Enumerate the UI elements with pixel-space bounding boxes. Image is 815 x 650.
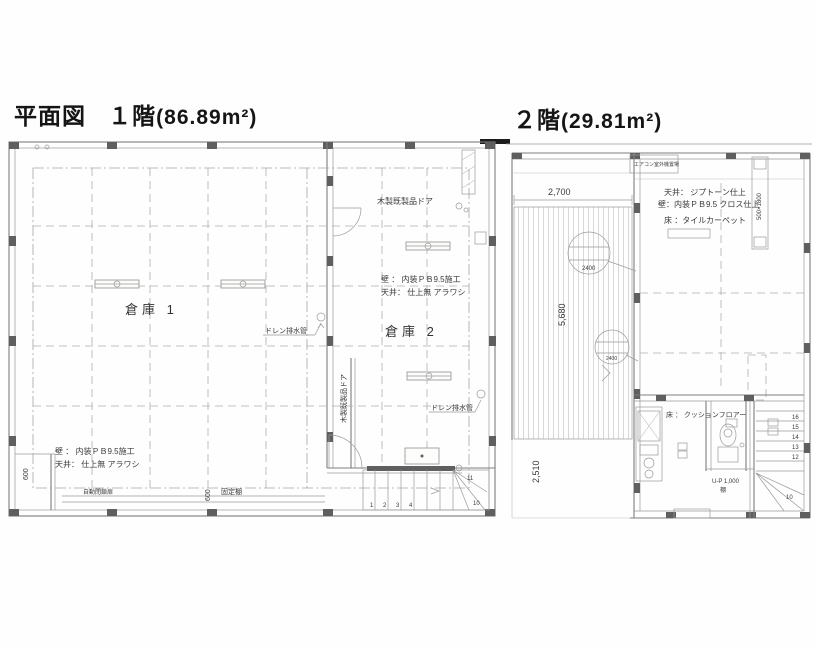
floor1-fixed-shelf xyxy=(62,496,325,502)
floor1-auto-door-label: 自動閉鎖扉 xyxy=(83,488,113,496)
floor2-stair-num-10: 10 xyxy=(786,495,793,501)
floor1-label: １階 xyxy=(108,103,156,129)
floor1-spec-right-wall: 壁 ： 内装ＰＢ9.5施工 xyxy=(381,274,461,284)
floor1-plan: 倉庫 1 倉庫 2 壁 ： 内装ＰＢ9.5施工 天井： 仕上無 アラワシ 壁 ：… xyxy=(7,136,499,524)
floor2-stair-num-12: 12 xyxy=(792,455,799,461)
floor2-ceiling-grid xyxy=(640,183,804,391)
floor2-title: ２階(29.81m²) xyxy=(513,101,662,135)
floor1-doors xyxy=(329,208,362,468)
floor1-stair-num-2: 2 xyxy=(383,503,387,509)
floor1-stair-num-3: 3 xyxy=(396,503,400,509)
floor1-drain-label-2: ドレン排水管 xyxy=(431,403,473,412)
floor1-stair-num-4: 4 xyxy=(409,503,413,509)
floor2-stair-num-14: 14 xyxy=(792,435,799,441)
floor1-wood-door-label-side: 木製既製品ドア xyxy=(339,374,348,423)
floor2-plan: 天井： ジプトーン仕上 壁：内装ＰＢ9.5 クロス仕上 床 ：タイルカーペット … xyxy=(506,143,815,523)
floor2-stair-num-13: 13 xyxy=(792,445,799,451)
floor2-cabinet-symbol xyxy=(678,419,737,458)
floor1-stair-num-11: 11 xyxy=(467,476,474,482)
floor2-stair-num-16: 16 xyxy=(792,415,799,421)
floor1-spec-left-wall: 壁 ： 内装ＰＢ9.5施工 xyxy=(55,446,135,456)
floor1-spec-right-ceiling: 天井： 仕上無 アラワシ xyxy=(381,287,465,297)
floor1-dim-600-bottom: 600 xyxy=(205,489,212,501)
floor1-spec-left-ceiling: 天井： 仕上無 アラワシ xyxy=(55,459,139,469)
floor2-bubble2-value: 2400 xyxy=(606,356,617,362)
floor2-floor-note: 床 ： クッションフロアー xyxy=(666,410,746,419)
floor2-spec-ceiling: 天井： ジプトーン仕上 xyxy=(664,187,746,197)
floor2-roof-hatch xyxy=(512,173,632,439)
floor1-area: (86.89m²) xyxy=(156,106,257,129)
floor1-drain-label-1: ドレン排水管 xyxy=(265,326,307,335)
floor1-stair-num-10: 10 xyxy=(473,501,480,507)
floor2-stair-num-15: 15 xyxy=(792,425,799,431)
floor2-spec-wall: 壁：内装ＰＢ9.5 クロス仕上 xyxy=(658,199,759,209)
floor2-toilet xyxy=(718,424,744,462)
floor1-wood-door-label-top: 木製既製品ドア xyxy=(377,196,433,206)
floor2-area: (29.81m²) xyxy=(561,110,662,133)
floor2-spec-underbox xyxy=(668,229,710,238)
page: 平面図 １階(86.89m²) ２階(29.81m²) xyxy=(0,0,815,650)
floor2-shelf-line2: 棚 xyxy=(720,486,726,494)
floor2-dim-5680: 5,680 xyxy=(557,303,567,326)
floor1-dim-600-left: 600 xyxy=(23,468,30,480)
floor2-shelf-line1: U-P 1,000 xyxy=(712,479,740,485)
plan-label: 平面図 xyxy=(14,103,86,129)
floor2-bubble1-value: 2400 xyxy=(582,266,596,272)
floor2-window-size: 500×1800 xyxy=(757,192,763,220)
floor2-dim-2510: 2,510 xyxy=(531,460,541,483)
floor1-stair-num-1: 1 xyxy=(370,503,374,509)
floor2-aircon-label: エアコン室外機置場 xyxy=(634,161,679,168)
floor1-fixed-shelf-label: 固定棚 xyxy=(221,487,242,496)
floor1-room2-label: 倉庫 2 xyxy=(385,324,438,339)
floor1-title: 平面図 １階(86.89m²) xyxy=(14,97,257,131)
floor2-dim-2700: 2,700 xyxy=(548,187,571,197)
floor2-label: ２階 xyxy=(513,107,561,133)
floor1-corner-shaft xyxy=(35,145,486,244)
floor1-room1-label: 倉庫 1 xyxy=(125,302,178,317)
floor2-spec-floor: 床 ：タイルカーペット xyxy=(664,215,746,225)
